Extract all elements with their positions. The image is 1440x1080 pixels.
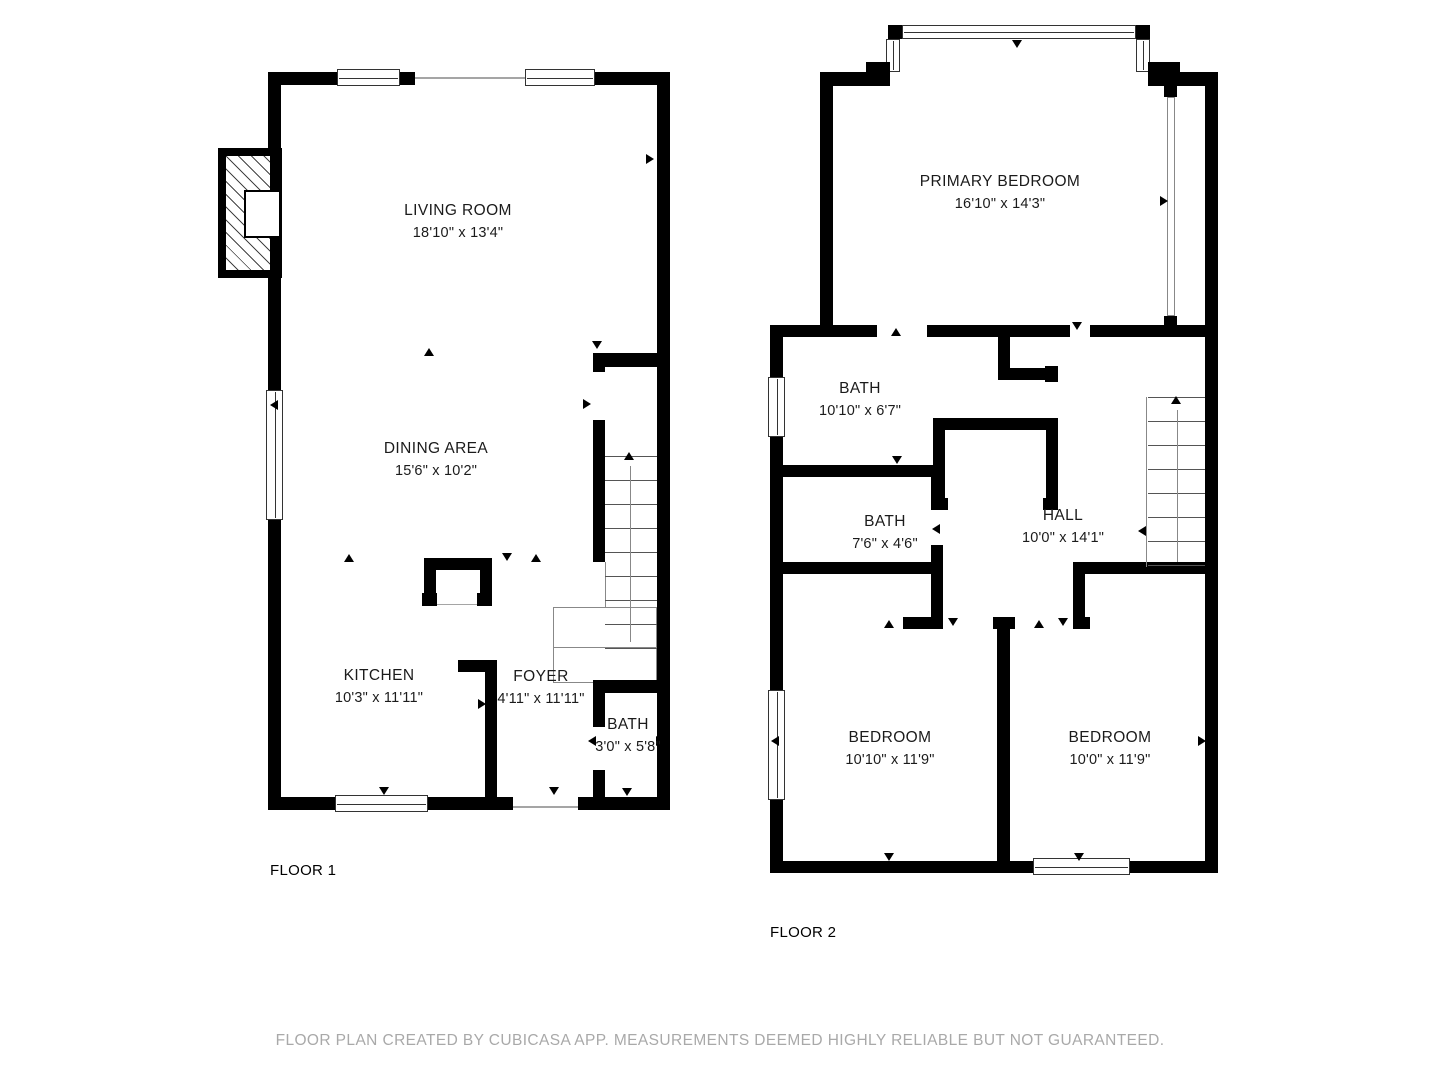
opening-marker-icon (592, 341, 602, 349)
room-dims: 10'3" x 11'11" (335, 687, 423, 709)
room-label-bath-lower: BATH 7'6" x 4'6" (852, 511, 918, 555)
window (337, 69, 400, 86)
room-dims: 3'0" x 5'8" (595, 736, 661, 758)
wall-segment (1205, 86, 1218, 873)
wall-segment (593, 770, 605, 797)
opening-marker-icon (646, 154, 654, 164)
opening-marker-icon (531, 554, 541, 562)
opening-marker-icon (270, 400, 278, 410)
kitchen-peninsula-wall (480, 570, 492, 593)
wall-segment (485, 660, 497, 797)
room-dims: 10'10" x 6'7" (819, 400, 901, 422)
wall-segment (997, 629, 1010, 863)
room-name: PRIMARY BEDROOM (920, 171, 1080, 193)
opening-marker-icon (771, 736, 779, 746)
opening-marker-icon (1198, 736, 1206, 746)
room-label-primary-bedroom: PRIMARY BEDROOM 16'10" x 14'3" (920, 171, 1080, 215)
room-label-hall: HALL 10'0" x 14'1" (1022, 505, 1104, 549)
opening-marker-icon (622, 788, 632, 796)
room-dims: 18'10" x 13'4" (404, 222, 512, 244)
opening-marker-icon (1074, 853, 1084, 861)
opening-marker-icon (379, 787, 389, 795)
wall-segment (1130, 861, 1218, 873)
stair-edge-line (1146, 397, 1147, 567)
window (768, 377, 785, 437)
opening-marker-icon (1012, 40, 1022, 48)
wall-segment (1045, 366, 1058, 382)
room-label-bath-floor1: BATH 3'0" x 5'8" (595, 714, 661, 758)
wall-segment (1010, 368, 1045, 380)
bay-corner (888, 25, 902, 39)
wall-segment (820, 86, 833, 337)
wall-opening-line (415, 77, 525, 79)
stair-up-arrow-icon (1171, 396, 1181, 404)
wall-segment (595, 72, 670, 85)
wall-segment (400, 72, 415, 85)
wall-segment (770, 861, 1033, 873)
wall-segment (931, 477, 943, 510)
room-dims: 10'0" x 11'9" (1069, 749, 1152, 771)
floor1-label: FLOOR 1 (270, 862, 336, 879)
wall-segment (268, 797, 335, 810)
opening-marker-icon (549, 787, 559, 795)
opening-marker-icon (1138, 526, 1146, 536)
opening-marker-icon (272, 696, 280, 706)
wall-segment (1164, 86, 1177, 97)
wall-segment (593, 353, 605, 372)
wall-segment (578, 797, 670, 810)
wall-segment (458, 660, 485, 672)
room-label-bath-upper: BATH 10'10" x 6'7" (819, 378, 901, 422)
stair-up-arrow-icon (624, 452, 634, 460)
room-label-kitchen: KITCHEN 10'3" x 11'11" (335, 665, 423, 709)
room-dims: 10'0" x 14'1" (1022, 527, 1104, 549)
entry-door-opening (513, 806, 578, 808)
footer-disclaimer: FLOOR PLAN CREATED BY CUBICASA APP. MEAS… (0, 1032, 1440, 1050)
room-name: LIVING ROOM (404, 200, 512, 222)
floor2-label: FLOOR 2 (770, 924, 836, 941)
opening-marker-icon (478, 699, 486, 709)
bay-window (902, 25, 1136, 39)
opening-marker-icon (1034, 620, 1044, 628)
window (335, 795, 428, 812)
kitchen-peninsula-wall (477, 593, 492, 606)
room-name: BATH (852, 511, 918, 533)
wall-segment (993, 617, 1015, 629)
wall-segment (428, 797, 513, 810)
wall-segment (927, 325, 1070, 337)
room-name: BATH (595, 714, 661, 736)
opening-marker-icon (851, 466, 861, 474)
wall-segment (268, 520, 281, 797)
kitchen-peninsula-wall (424, 558, 492, 570)
opening-marker-icon (1072, 322, 1082, 330)
room-dims: 4'11" x 11'11" (497, 688, 584, 710)
wall-segment (1073, 574, 1085, 618)
opening-marker-icon (502, 553, 512, 561)
room-name: BATH (819, 378, 901, 400)
opening-marker-icon (892, 456, 902, 464)
wall-segment (268, 72, 337, 85)
room-dims: 10'10" x 11'9" (845, 749, 934, 771)
stair-direction-line (1177, 410, 1178, 562)
wall-segment (820, 72, 890, 86)
wall-segment (903, 617, 943, 629)
wall-segment (931, 574, 943, 618)
room-name: DINING AREA (384, 438, 488, 460)
opening-marker-icon (344, 554, 354, 562)
room-name: BEDROOM (1069, 727, 1152, 749)
wall-segment (593, 420, 605, 562)
window (525, 69, 595, 86)
room-label-bedroom-left: BEDROOM 10'10" x 11'9" (845, 727, 934, 771)
opening-marker-icon (932, 524, 940, 534)
wall-segment (268, 85, 281, 148)
closet-wall (933, 418, 1058, 430)
room-dims: 7'6" x 4'6" (852, 533, 918, 555)
fireplace-firebox (244, 190, 281, 238)
room-dims: 15'6" x 10'2" (384, 460, 488, 482)
opening-marker-icon (891, 328, 901, 336)
opening-marker-icon (948, 618, 958, 626)
staircase (605, 456, 657, 649)
kitchen-peninsula-wall (422, 593, 437, 606)
floor-plan-canvas: LIVING ROOM 18'10" x 13'4" DINING AREA 1… (0, 0, 1440, 1080)
opening-marker-icon (424, 348, 434, 356)
opening-marker-icon (583, 399, 591, 409)
opening-marker-icon (851, 563, 861, 571)
wall-segment (998, 337, 1010, 380)
opening-marker-icon (1160, 196, 1168, 206)
room-label-foyer: FOYER 4'11" x 11'11" (497, 666, 584, 710)
wall-segment (268, 278, 281, 390)
wall-segment (820, 325, 877, 337)
opening-marker-icon (1058, 618, 1068, 626)
room-dims: 16'10" x 14'3" (920, 193, 1080, 215)
wall-segment (1090, 325, 1205, 337)
opening-marker-icon (884, 853, 894, 861)
room-label-bedroom-right: BEDROOM 10'0" x 11'9" (1069, 727, 1152, 771)
wall-segment (1073, 617, 1090, 629)
stair-direction-line (630, 466, 631, 642)
room-name: FOYER (497, 666, 584, 688)
kitchen-peninsula-wall (424, 570, 436, 593)
opening-marker-icon (622, 682, 632, 690)
wall-segment (770, 800, 783, 861)
opening-marker-icon (485, 733, 495, 741)
room-label-dining-area: DINING AREA 15'6" x 10'2" (384, 438, 488, 482)
room-name: BEDROOM (845, 727, 934, 749)
opening-marker-icon (884, 620, 894, 628)
counter-line (437, 604, 477, 605)
closet-slider (1167, 97, 1175, 316)
wall-segment (1148, 72, 1218, 86)
bay-corner (1136, 25, 1150, 39)
room-name: HALL (1022, 505, 1104, 527)
room-label-living-room: LIVING ROOM 18'10" x 13'4" (404, 200, 512, 244)
room-name: KITCHEN (335, 665, 423, 687)
opening-marker-icon (824, 196, 832, 206)
wall-segment (770, 337, 783, 377)
